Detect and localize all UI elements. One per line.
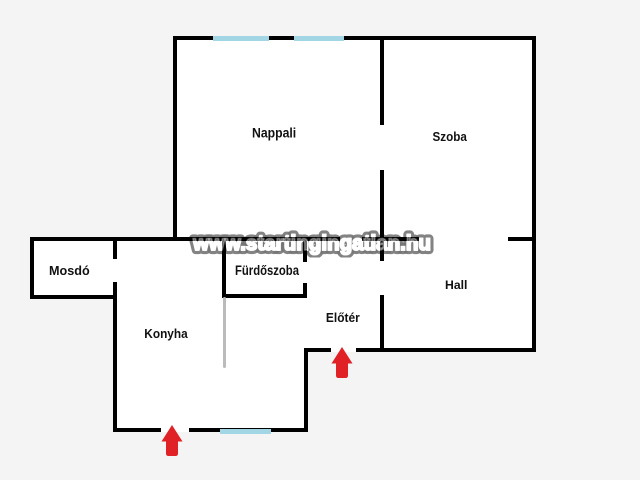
svg-text:www.startingingatlan.hu: www.startingingatlan.hu	[192, 232, 431, 255]
